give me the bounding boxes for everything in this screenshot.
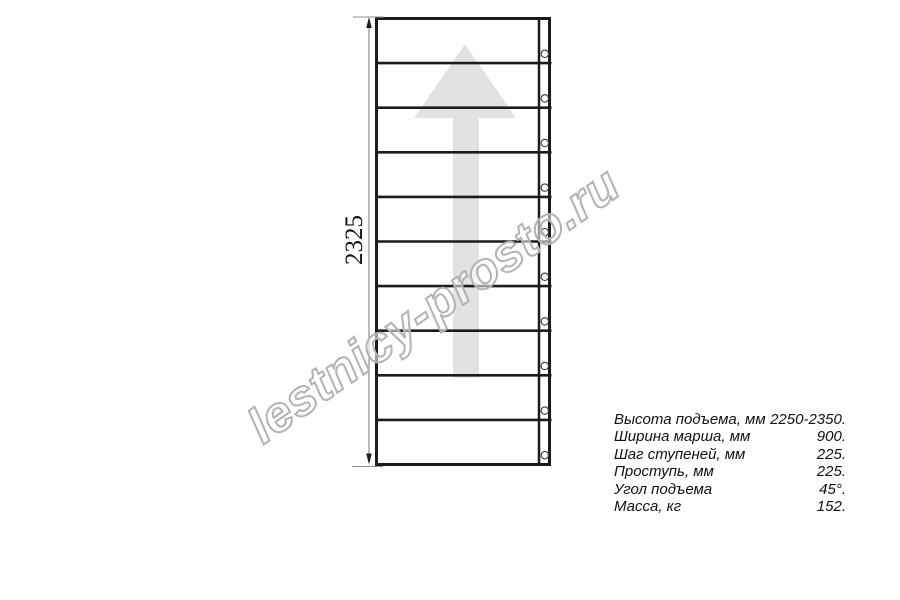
spec-value: 225.: [817, 446, 846, 463]
spec-row-step: Шаг ступеней, мм 225.: [614, 446, 846, 463]
spec-row-angle: Угол подъема 45°.: [614, 481, 846, 498]
spec-label: Проступь, мм: [614, 463, 714, 480]
dimension-arrow-up: [366, 17, 372, 28]
watermark: lestnicy-prosto.ru: [237, 156, 630, 454]
spec-value: 225.: [817, 463, 846, 480]
rail-hole: [541, 362, 548, 369]
dimension-arrow-down: [366, 454, 372, 465]
spec-row-mass: Масса, кг 152.: [614, 498, 846, 515]
spec-row-width: Ширина марша, мм 900.: [614, 428, 846, 445]
rail-hole: [541, 50, 548, 57]
stairs-plan-drawing: 2325 lestnicy-prosto.ru Высота подъема, …: [0, 0, 900, 600]
rail-hole: [541, 407, 548, 414]
rail-hole: [541, 273, 548, 280]
rail-hole: [541, 139, 548, 146]
spec-label: Шаг ступеней, мм: [614, 446, 745, 463]
spec-label: Масса, кг: [614, 498, 681, 515]
rail-hole: [541, 318, 548, 325]
spec-value: 152.: [817, 498, 846, 515]
specs-table: Высота подъема, мм 2250-2350. Ширина мар…: [614, 411, 846, 516]
spec-value: 2250-2350.: [770, 411, 846, 428]
spec-label: Угол подъема: [614, 481, 712, 498]
rail-hole: [541, 452, 548, 459]
spec-value: 900.: [817, 428, 846, 445]
spec-row-height: Высота подъема, мм 2250-2350.: [614, 411, 846, 428]
spec-row-tread: Проступь, мм 225.: [614, 463, 846, 480]
spec-label: Ширина марша, мм: [614, 428, 750, 445]
spec-value: 45°.: [819, 481, 846, 498]
dimension-label: 2325: [341, 215, 368, 265]
spec-label: Высота подъема, мм: [614, 411, 766, 428]
rail-hole: [541, 95, 548, 102]
